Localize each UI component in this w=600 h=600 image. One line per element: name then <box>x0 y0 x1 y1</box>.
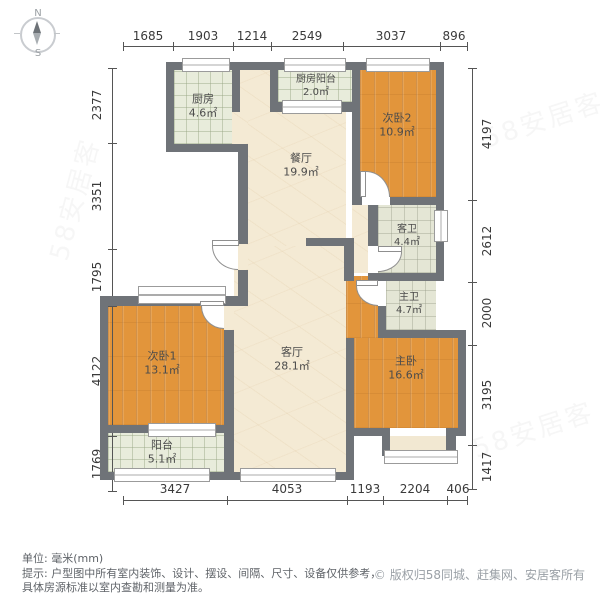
dim-label-left-1: 3351 <box>90 181 104 212</box>
copyright-notice: ©版权归58同城、赶集网、安居客所有 <box>374 566 585 583</box>
dim-label-left-2: 1795 <box>90 262 104 293</box>
dim-label-top-5: 896 <box>443 29 466 43</box>
dim-tick <box>108 249 117 250</box>
dim-label-bottom-1: 4053 <box>272 482 303 496</box>
dim-label-bottom-3: 2204 <box>400 482 431 496</box>
compass-east-tick <box>54 33 60 34</box>
dim-tick <box>447 496 448 505</box>
guest-bath-window <box>434 210 448 242</box>
dim-label-top-4: 3037 <box>376 29 407 43</box>
dim-label-top-1: 1903 <box>188 29 219 43</box>
dim-label-left-0: 2377 <box>90 90 104 121</box>
wall <box>238 144 248 244</box>
dim-line-right <box>472 68 473 490</box>
dim-tick <box>271 42 272 51</box>
kitchen-balcony-window <box>284 58 346 72</box>
dim-tick <box>108 143 117 144</box>
room-guest-bath-label: 客卫4.4㎡ <box>394 223 420 249</box>
dim-tick <box>468 282 477 283</box>
kitchen-window <box>182 58 230 72</box>
balcony-window <box>114 468 210 482</box>
copyright-text: 版权归58同城、赶集网、安居客所有 <box>390 568 585 582</box>
unit-note: 单位: 毫米(mm) <box>22 552 381 567</box>
dim-label-top-2: 1214 <box>237 29 268 43</box>
dim-label-right-0: 4197 <box>480 119 494 150</box>
wall <box>368 205 378 246</box>
compass-north-label: N <box>34 8 41 19</box>
dim-tick <box>108 68 117 69</box>
dim-tick <box>343 42 344 51</box>
dim-label-bottom-0: 3427 <box>160 482 191 496</box>
dim-tick <box>347 496 348 505</box>
dim-tick <box>468 445 477 446</box>
room-bedroom1-label: 次卧113.1㎡ <box>144 350 180 379</box>
dim-tick <box>467 42 468 51</box>
wall <box>232 62 240 112</box>
dim-tick <box>108 491 117 492</box>
floorplan-canvas: 58安居客 58安居客 58安居客 58安居客 N S <box>0 0 600 600</box>
wall <box>378 306 386 330</box>
footer-notes: 单位: 毫米(mm) 提示: 户型图中所有室内装饰、设计、摆设、间隔、尺寸、设备… <box>22 552 381 596</box>
kitchen-doorway-floor <box>232 112 248 144</box>
dim-label-right-1: 2612 <box>480 226 494 257</box>
wall <box>344 238 354 281</box>
wall <box>346 338 354 472</box>
room-kitchen-balcony-label: 厨房阳台2.0㎡ <box>296 73 336 99</box>
compass-needle-north <box>33 21 41 33</box>
wall <box>166 62 174 152</box>
dim-tick <box>108 436 117 437</box>
dim-line-top <box>123 46 468 47</box>
dim-tick <box>468 68 477 69</box>
compass-icon: N S <box>14 6 62 62</box>
wall <box>224 296 248 306</box>
watermark: 58安居客 <box>477 81 600 155</box>
dim-tick <box>227 496 228 505</box>
dim-tick <box>108 306 117 307</box>
compass-west-tick <box>14 33 20 34</box>
room-balcony-label: 阳台5.1㎡ <box>148 439 177 468</box>
bedroom1-balcony-window <box>148 423 216 437</box>
dim-tick <box>123 496 124 505</box>
dim-label-top-0: 1685 <box>133 29 164 43</box>
wall <box>224 330 234 472</box>
bedroom2-window <box>366 58 430 72</box>
wall <box>352 197 362 205</box>
room-living-label: 客厅28.1㎡ <box>274 346 310 375</box>
tip-line-1: 提示: 户型图中所有室内装饰、设计、摆设、间隔、尺寸、设备仅供参考， <box>22 567 381 582</box>
dim-tick <box>383 496 384 505</box>
wall <box>458 330 466 436</box>
wall <box>436 62 444 281</box>
bedroom1-doorway-floor <box>224 306 234 330</box>
dim-line-bottom <box>123 500 468 501</box>
compass-south-label: S <box>35 48 41 59</box>
copyright-icon: © <box>374 568 386 582</box>
dim-label-right-3: 3195 <box>480 380 494 411</box>
wall <box>378 330 466 338</box>
wall <box>166 144 248 152</box>
living-window <box>240 468 336 482</box>
dim-tick <box>123 42 124 51</box>
dim-tick <box>440 42 441 51</box>
room-kitchen-label: 厨房4.6㎡ <box>189 93 218 122</box>
wall <box>368 273 444 281</box>
wall <box>100 296 108 480</box>
entry-doorway-floor <box>238 244 248 270</box>
hall-niche-floor <box>352 205 368 273</box>
dim-tick <box>233 42 234 51</box>
dim-tick <box>467 496 468 505</box>
room-master-bedroom-label: 主卧16.6㎡ <box>388 355 424 384</box>
dim-tick <box>468 345 477 346</box>
dim-tick <box>468 200 477 201</box>
dim-label-bottom-4: 406 <box>447 482 470 496</box>
dim-label-top-3: 2549 <box>292 29 323 43</box>
dim-label-bottom-2: 1193 <box>350 482 381 496</box>
dim-label-right-4: 1417 <box>480 452 494 483</box>
room-master-bath-label: 主卫4.7㎡ <box>396 291 422 317</box>
tip-line-2: 具体房源标准以室内查勘和测量为准。 <box>22 581 381 596</box>
master-bay-window <box>384 450 458 464</box>
balcony-slider-window <box>282 100 342 114</box>
wall <box>352 62 360 197</box>
compass-needle-south <box>33 33 41 45</box>
room-dining-label: 餐厅19.9㎡ <box>283 152 319 181</box>
entry-door-arc <box>212 246 238 270</box>
dim-label-right-2: 2000 <box>480 298 494 329</box>
room-bedroom2-label: 次卧210.9㎡ <box>379 112 415 141</box>
dim-tick <box>173 42 174 51</box>
